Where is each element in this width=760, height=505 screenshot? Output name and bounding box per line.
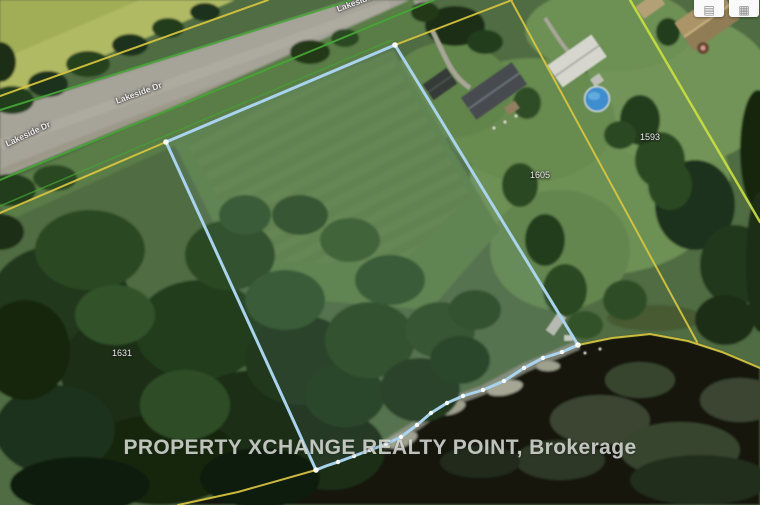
parcel-number-1593: 1593 <box>640 132 660 142</box>
parcel-number-1605: 1605 <box>530 170 550 180</box>
patio-stone <box>514 114 517 117</box>
brokerage-watermark: PROPERTY XCHANGE REALTY POINT, Brokerage <box>0 436 760 460</box>
map-type-icon: ▦ <box>738 3 749 17</box>
map-canvas: Lakeside Dr Lakeside Dr Lakeside Dr 1631… <box>0 0 760 505</box>
patio-stone <box>492 126 495 129</box>
map-control-button-1[interactable]: ▤ <box>694 0 724 17</box>
map-control-button-2[interactable]: ▦ <box>729 0 759 17</box>
boat-speck <box>599 348 602 351</box>
boat-speck <box>584 352 587 355</box>
satellite-imagery <box>0 0 760 505</box>
pool-highlight <box>588 92 600 100</box>
layers-icon: ▤ <box>703 3 714 17</box>
fire-pit-center <box>701 46 706 51</box>
patio-stone <box>503 120 506 123</box>
parcel-number-1631: 1631 <box>112 348 132 358</box>
